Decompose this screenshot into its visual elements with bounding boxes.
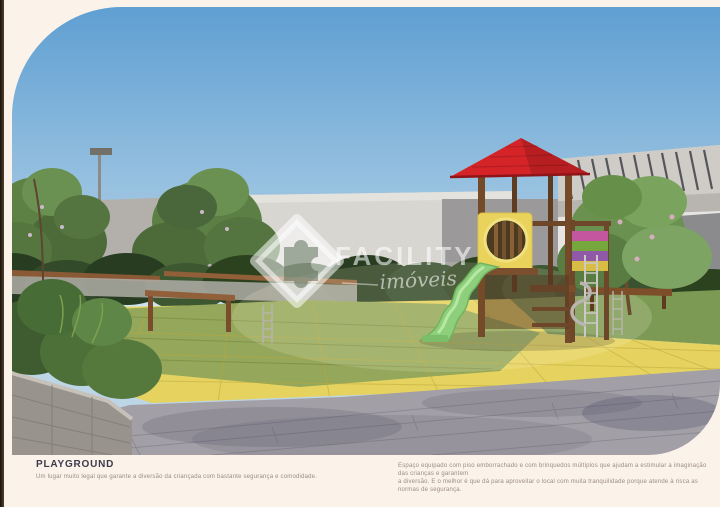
climbing-wall [572, 231, 608, 271]
playground-scene: FACILITY imóveis [12, 7, 720, 455]
caption-subtitle: Um lugar muito legal que garante a diver… [36, 474, 317, 480]
caption-title: PLAYGROUND [36, 459, 114, 470]
brochure-page: FACILITY imóveis PLAYGROUND Um lugar mui… [0, 0, 720, 507]
caption-description-line2: a diversão. E o melhor é que dá para apr… [398, 478, 710, 494]
caption-description-line1: Espaço equipado com piso emborrachado e … [398, 462, 710, 478]
watermark-subtitle-text: imóveis [379, 266, 457, 294]
playground-photo: FACILITY imóveis [12, 7, 720, 455]
page-spine-edge [0, 0, 4, 507]
caption-description: Espaço equipado com piso emborrachado e … [398, 462, 710, 494]
